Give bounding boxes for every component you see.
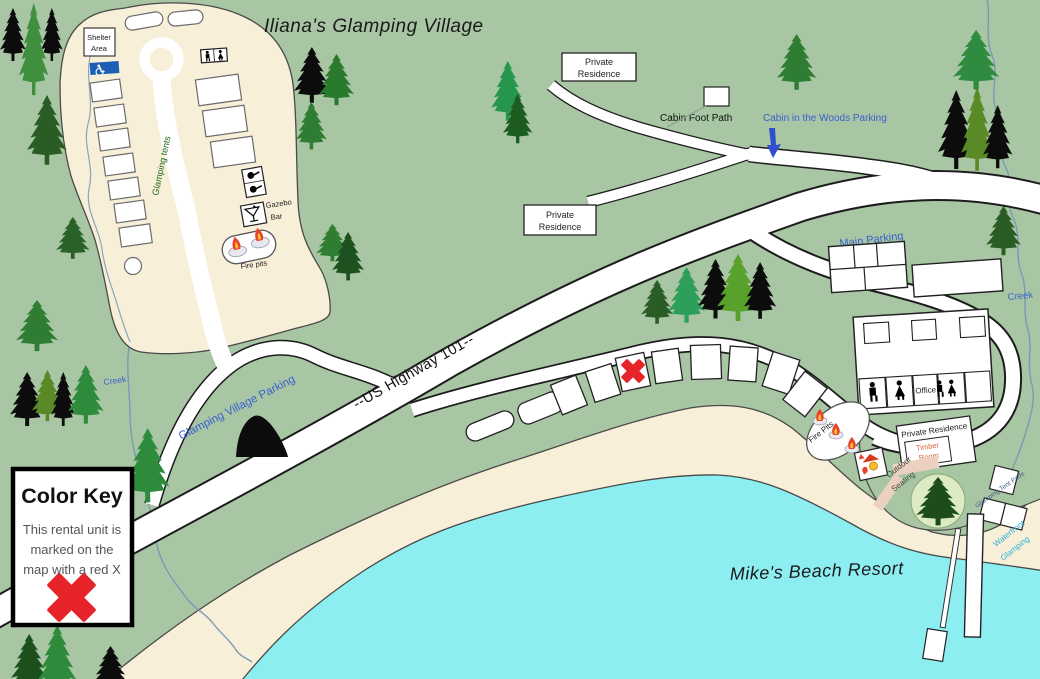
svg-text:map with a red X: map with a red X bbox=[23, 562, 121, 577]
svg-text:Creek: Creek bbox=[1007, 290, 1033, 303]
svg-text:Residence: Residence bbox=[539, 222, 582, 232]
svg-text:marked on the: marked on the bbox=[30, 542, 113, 557]
svg-text:Residence: Residence bbox=[578, 69, 621, 79]
svg-text:Iliana's Glamping Village: Iliana's Glamping Village bbox=[264, 16, 484, 37]
svg-text:Area: Area bbox=[91, 44, 108, 53]
svg-text:Cabin in the Woods Parking: Cabin in the Woods Parking bbox=[763, 113, 887, 124]
svg-text:Private: Private bbox=[546, 210, 574, 220]
svg-text:Private: Private bbox=[585, 57, 613, 67]
svg-text:Bar: Bar bbox=[270, 211, 283, 222]
svg-text:This rental unit is: This rental unit is bbox=[23, 522, 122, 537]
svg-text:Shelter: Shelter bbox=[87, 33, 111, 42]
svg-text:Color Key: Color Key bbox=[21, 484, 123, 508]
svg-text:Cabin Foot Path: Cabin Foot Path bbox=[660, 113, 732, 124]
svg-text:Office: Office bbox=[915, 385, 937, 395]
